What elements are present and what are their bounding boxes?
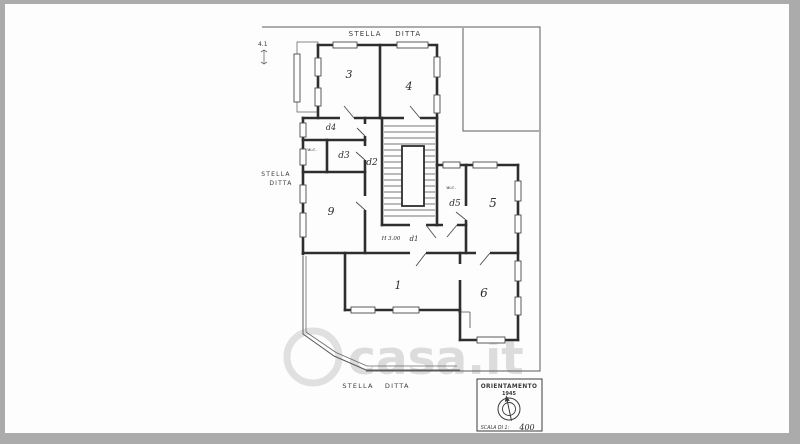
room-label-9: 9	[328, 205, 335, 218]
casait-logo-circle-icon	[287, 331, 339, 383]
room-label-3: 3	[346, 68, 353, 81]
room-label-d4: d4	[326, 123, 336, 132]
orientation-subtitle: 1945	[502, 391, 516, 397]
room-label-d5: d5	[449, 199, 461, 209]
room-label-wc-west: w.c.	[307, 147, 317, 153]
height-note: H 3.00	[381, 236, 401, 242]
room-label-d2: d2	[366, 158, 378, 168]
scale-value: 400	[518, 423, 534, 432]
stair-newel	[402, 146, 424, 206]
west-boundary-label-line2: DITTA	[269, 180, 292, 187]
dimension-marker: 4.1	[258, 41, 268, 64]
staircase	[384, 126, 435, 216]
floor-plan-svg: casa.it 4.1	[0, 0, 800, 444]
west-boundary-label-line1: STELLA	[261, 171, 290, 178]
room-label-d3: d3	[338, 151, 350, 161]
orientation-box: ORIENTAMENTO 1945 SCALA DI 1: 400	[477, 379, 542, 432]
dimension-label: 4.1	[258, 41, 268, 48]
listing-image: casa.it 4.1	[0, 0, 800, 444]
room-label-4: 4	[405, 80, 413, 93]
scale-label: SCALA DI 1:	[481, 425, 510, 431]
room-label-5: 5	[489, 196, 497, 210]
room-label-6: 6	[480, 286, 488, 300]
orientation-title: ORIENTAMENTO	[481, 384, 538, 390]
boundary-notch-line	[463, 28, 539, 131]
room-label-d1: d1	[410, 235, 419, 243]
south-boundary-label: STELLA DITTA	[342, 382, 409, 390]
dimension-arrow-icon	[261, 50, 267, 64]
room-label-wc-east: w.c.	[446, 185, 456, 191]
room-label-1: 1	[395, 279, 402, 292]
north-boundary-label: STELLA DITTA	[349, 30, 422, 38]
